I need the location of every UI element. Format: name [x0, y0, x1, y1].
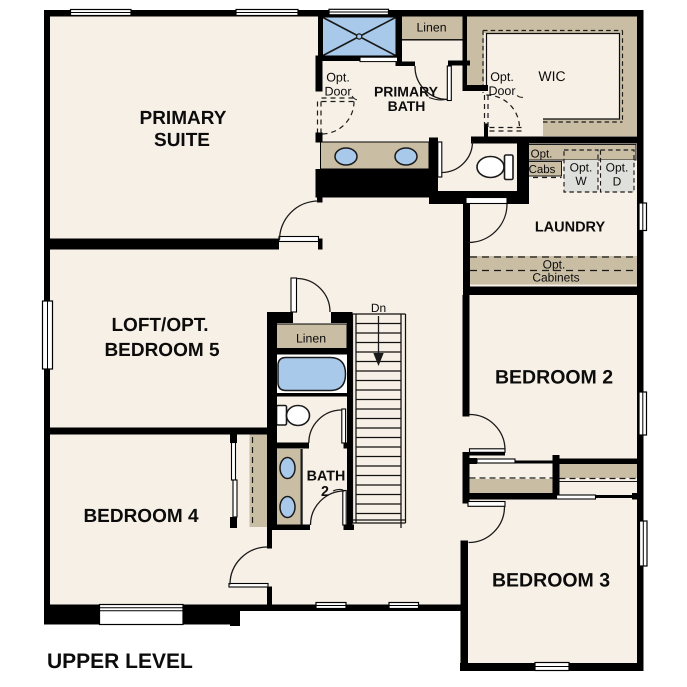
- svg-text:UPPER LEVEL: UPPER LEVEL: [47, 650, 193, 673]
- svg-text:PRIMARY: PRIMARY: [140, 108, 227, 129]
- svg-text:Opt.: Opt.: [570, 161, 593, 175]
- svg-text:BEDROOM 5: BEDROOM 5: [104, 340, 220, 361]
- svg-text:Cabinets: Cabinets: [532, 271, 579, 285]
- svg-text:Cabs: Cabs: [529, 164, 556, 176]
- svg-text:D: D: [613, 175, 622, 189]
- svg-text:BEDROOM 3: BEDROOM 3: [492, 570, 610, 592]
- svg-text:Door: Door: [324, 85, 351, 99]
- svg-text:LOFT/OPT.: LOFT/OPT.: [111, 315, 208, 336]
- svg-text:SUITE: SUITE: [154, 130, 210, 151]
- svg-text:Linen: Linen: [416, 21, 446, 35]
- svg-text:Opt.: Opt.: [326, 71, 350, 85]
- svg-text:W: W: [575, 174, 587, 188]
- svg-text:Opt.: Opt.: [490, 70, 514, 84]
- svg-text:LAUNDRY: LAUNDRY: [535, 220, 606, 236]
- svg-text:Dn: Dn: [371, 301, 386, 315]
- svg-text:BATH: BATH: [388, 98, 426, 114]
- svg-text:WIC: WIC: [538, 68, 565, 84]
- svg-text:Door: Door: [488, 84, 515, 98]
- svg-text:BEDROOM 4: BEDROOM 4: [83, 506, 199, 527]
- svg-text:2: 2: [321, 484, 329, 500]
- svg-text:Linen: Linen: [296, 332, 326, 346]
- svg-text:Opt.: Opt.: [531, 149, 553, 161]
- svg-text:Opt.: Opt.: [606, 161, 629, 175]
- svg-text:Opt.: Opt.: [543, 258, 566, 272]
- svg-text:BEDROOM 2: BEDROOM 2: [495, 367, 613, 389]
- svg-text:BATH: BATH: [307, 469, 346, 485]
